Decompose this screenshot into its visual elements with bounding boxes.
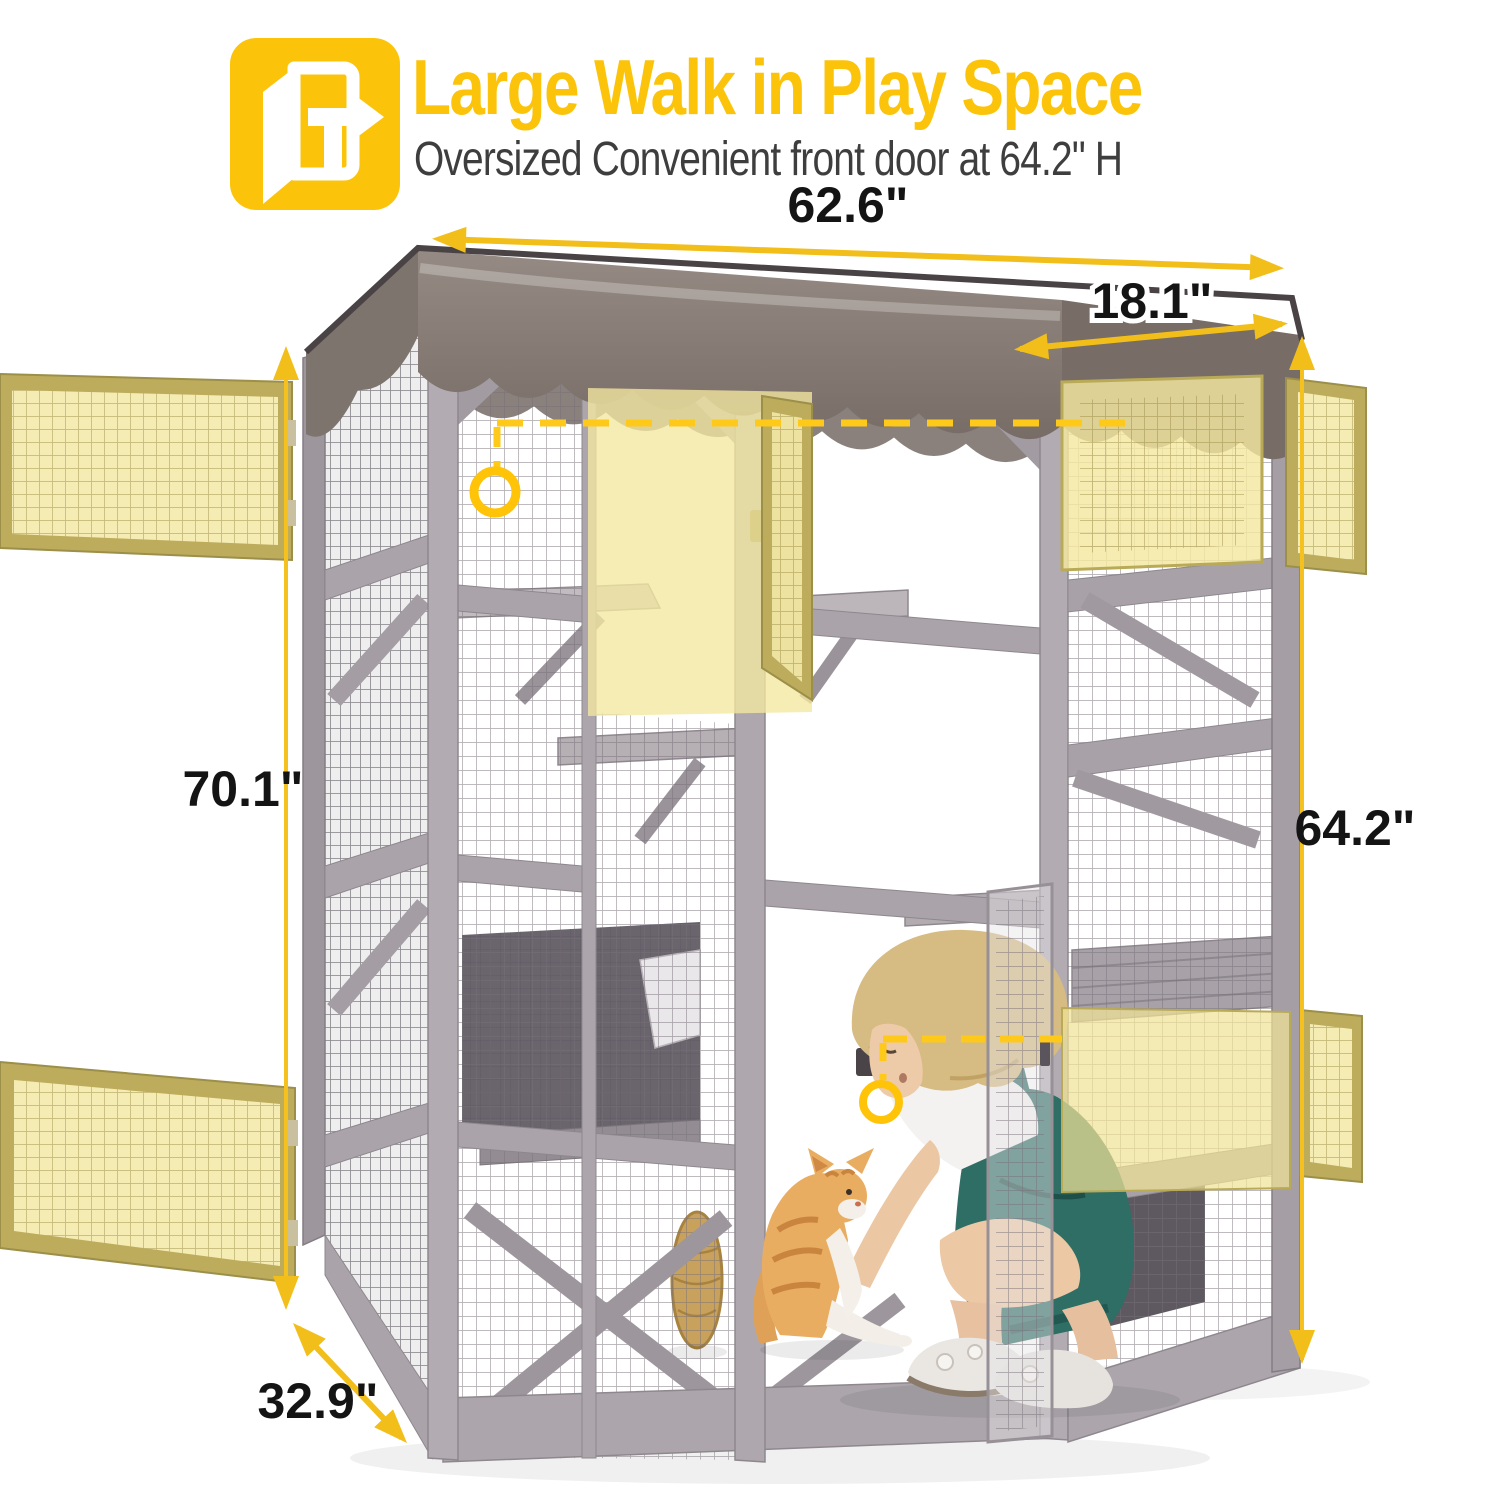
dimension-label-right-height: 64.2" [1294, 800, 1415, 856]
open-door-top-right [1062, 376, 1366, 574]
cat-figure [753, 1148, 912, 1360]
back-left-post [303, 352, 325, 1245]
open-door-bottom-right [1062, 1008, 1362, 1192]
front-left-post [428, 262, 458, 1460]
open-door-top-left [0, 374, 296, 560]
left-side-panel [303, 262, 432, 1458]
dimension-label-bottom-depth: 32.9" [257, 1373, 378, 1429]
open-front-door-leaf [988, 884, 1052, 1442]
dimension-label-top-depth: 18.1" [1091, 273, 1212, 329]
dimension-label-left-height: 70.1" [182, 761, 303, 817]
open-door-bottom-left [0, 1062, 298, 1283]
dimension-label-top-width: 62.6" [787, 177, 908, 233]
front-door-highlight [588, 388, 812, 716]
catio-illustration: 62.6" 18.1" 70.1" 64.2" 32.9" [0, 0, 1500, 1500]
